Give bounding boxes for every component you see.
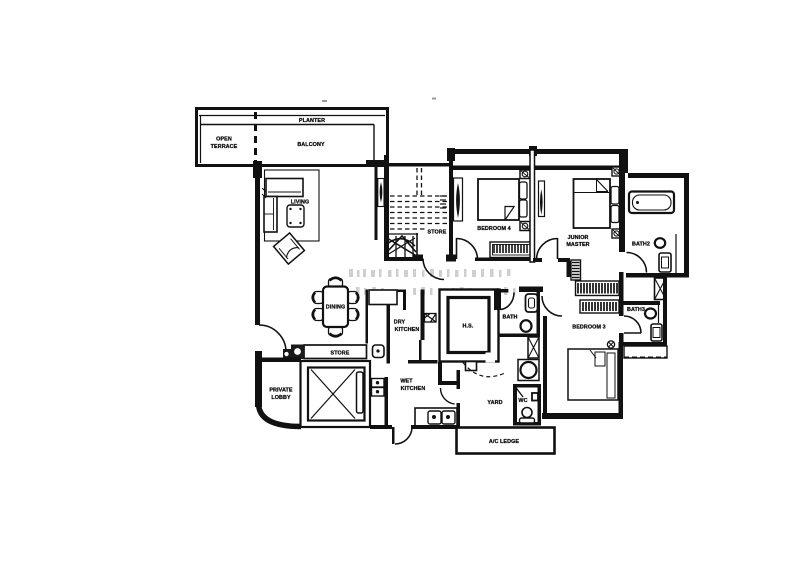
svg-text:MASTER: MASTER [566, 242, 589, 248]
svg-text:DRY: DRY [394, 320, 406, 326]
svg-text:H.S.: H.S. [463, 324, 474, 330]
svg-text:STORE: STORE [331, 351, 350, 357]
svg-text:TERRACE: TERRACE [211, 144, 238, 150]
svg-text:LOBBY: LOBBY [271, 395, 291, 401]
svg-text:KITCHEN: KITCHEN [395, 327, 420, 333]
svg-text:STORE: STORE [428, 230, 447, 236]
svg-text:JUNIOR: JUNIOR [568, 235, 589, 241]
svg-text:OPEN: OPEN [216, 137, 232, 143]
svg-text:WC: WC [518, 398, 527, 404]
svg-text:BEDROOM 3: BEDROOM 3 [572, 325, 606, 331]
svg-text:A/C LEDGE: A/C LEDGE [489, 439, 520, 445]
svg-text:PRIVATE: PRIVATE [269, 388, 293, 394]
svg-text:DINING: DINING [326, 305, 345, 311]
svg-text:YARD: YARD [487, 400, 502, 406]
svg-text:BATH3: BATH3 [627, 307, 645, 313]
svg-text:PLANTER: PLANTER [299, 118, 325, 124]
svg-text:BEDROOM 4: BEDROOM 4 [477, 226, 511, 232]
svg-text:BATH2: BATH2 [632, 242, 650, 248]
svg-text:BALCONY: BALCONY [297, 142, 325, 148]
svg-text:WET: WET [400, 379, 413, 385]
svg-text:KITCHEN: KITCHEN [401, 386, 426, 392]
svg-text:BATH: BATH [503, 315, 518, 321]
